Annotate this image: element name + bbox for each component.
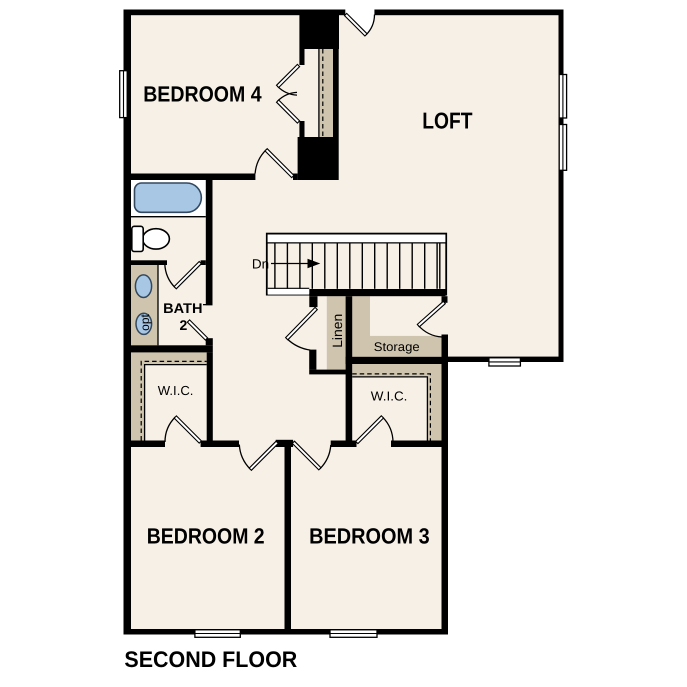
svg-text:Linen: Linen: [330, 314, 345, 348]
svg-text:2: 2: [180, 317, 188, 333]
svg-text:LOFT: LOFT: [422, 108, 472, 134]
svg-text:BEDROOM 2: BEDROOM 2: [147, 524, 265, 549]
svg-text:Dn: Dn: [252, 257, 269, 272]
svg-text:BEDROOM 3: BEDROOM 3: [309, 524, 430, 549]
svg-text:SECOND FLOOR: SECOND FLOOR: [124, 647, 297, 672]
svg-text:W.I.C.: W.I.C.: [371, 388, 408, 403]
svg-text:BEDROOM 4: BEDROOM 4: [143, 81, 262, 106]
svg-text:BATH: BATH: [163, 300, 202, 316]
svg-text:Storage: Storage: [374, 340, 420, 354]
svg-text:opt: opt: [138, 313, 152, 330]
svg-text:W.I.C.: W.I.C.: [158, 383, 194, 398]
